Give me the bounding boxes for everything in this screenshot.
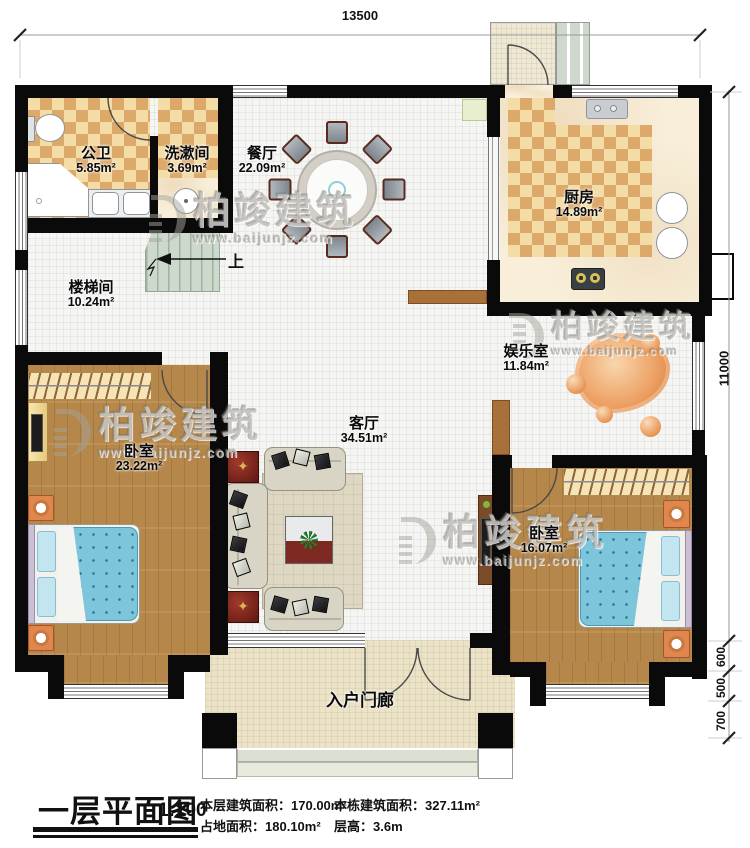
room-label-living: 客厅 34.51m²: [324, 416, 404, 446]
room-name: 厨房: [539, 190, 619, 206]
sofa-pillow-icon: [312, 596, 329, 613]
window: [228, 633, 365, 648]
room-name: 入户门廊: [290, 692, 430, 710]
wardrobe-bedroom2: [563, 468, 690, 496]
floor-kitchen-checker: [508, 98, 555, 128]
stove-burner-right: [590, 273, 600, 283]
room-name: 卧室: [504, 526, 584, 542]
porch-step: [237, 762, 478, 777]
backdoor-threshold: [505, 85, 553, 98]
wall: [15, 85, 28, 172]
ottoman-ball-icon: [641, 334, 660, 353]
fridge-icon: [462, 99, 487, 121]
pillow-icon: [37, 531, 56, 572]
kitchen-sink-faucets2: [610, 105, 617, 112]
ottoman-ball-icon: [596, 406, 613, 423]
nightstand-icon: [663, 630, 690, 658]
room-area: 5.85m²: [56, 162, 136, 176]
sofa-pillow-icon: [314, 453, 331, 470]
room-label-entertainment: 娱乐室 11.84m²: [486, 344, 566, 374]
sofa-pillow-icon: [292, 599, 310, 617]
dining-chair-icon: [326, 235, 348, 258]
partition-wood-horizontal: [408, 290, 487, 304]
dim-top-13500: 13500: [334, 8, 386, 23]
window: [15, 172, 28, 250]
toilet-bowl-icon: [35, 114, 65, 142]
room-name: 楼梯间: [51, 280, 131, 296]
room-area: 23.22m²: [99, 460, 179, 474]
wall: [692, 316, 705, 342]
wardrobe-bedroom1: [28, 372, 152, 400]
backdoor-steps: [556, 22, 590, 85]
kitchen-round-top-icon: [656, 192, 688, 224]
wall: [487, 98, 500, 137]
dining-chair-icon: [383, 179, 406, 201]
ottoman-ball-icon: [640, 416, 661, 437]
stove-burner-left: [576, 273, 586, 283]
dining-chair-icon: [326, 121, 348, 144]
room-area: 22.09m²: [222, 162, 302, 176]
room-area: 16.07m²: [504, 542, 584, 556]
stat-storey-height: 层高：3.6m: [334, 816, 403, 835]
wall: [552, 455, 693, 468]
wall: [530, 662, 546, 706]
plant-icon: [300, 531, 318, 549]
wall: [184, 655, 210, 672]
room-label-bedroom2: 卧室 16.07m²: [504, 526, 584, 556]
room-name: 公卫: [56, 146, 136, 162]
stat-label: 占地面积：: [200, 819, 265, 834]
porch-step-side: [202, 748, 237, 779]
room-label-bathroom: 公卫 5.85m²: [56, 146, 136, 176]
pillow-icon: [37, 577, 56, 617]
end-table-icon: [227, 591, 259, 623]
stat-label: 本栋建筑面积：: [334, 798, 425, 813]
window: [233, 85, 287, 98]
wall: [15, 218, 233, 233]
tv-icon-living: [481, 518, 491, 566]
dim-right-11000: 11000: [717, 347, 732, 391]
nightstand-icon: [663, 500, 690, 528]
dining-table-center: [328, 181, 346, 199]
ottoman-ball-icon: [566, 374, 586, 394]
room-area: 34.51m²: [324, 432, 404, 446]
room-area: 11.84m²: [486, 360, 566, 374]
stat-total-area: 本栋建筑面积：327.11m²: [334, 795, 480, 814]
wall: [287, 85, 505, 98]
room-label-dining: 餐厅 22.09m²: [222, 146, 302, 176]
room-name: 卧室: [99, 444, 179, 460]
kitchen-sliding-door: [488, 137, 499, 260]
floor-bedroom1-bay: [64, 655, 168, 684]
shower-drain-icon: [36, 198, 42, 204]
sofa-pillow-icon: [230, 536, 248, 554]
wall: [15, 345, 28, 672]
wall: [15, 250, 28, 270]
stat-value: 180.10m²: [265, 819, 321, 834]
wall: [15, 352, 162, 365]
washroom-basin-drain: [184, 199, 188, 203]
wall: [15, 655, 48, 672]
wall: [15, 85, 233, 98]
porch-column: [202, 713, 237, 748]
stat-floor-area: 本层建筑面积：170.00m²: [200, 795, 347, 814]
partition-wood-vertical: [492, 400, 510, 455]
window: [692, 342, 705, 430]
stat-land-area: 占地面积：180.10m²: [200, 816, 321, 835]
cabinet-plant-dot: [483, 501, 490, 508]
window: [64, 684, 168, 699]
kitchen-sink-faucets: [594, 105, 601, 112]
wall: [692, 455, 707, 679]
room-name: 洗漱间: [147, 146, 227, 162]
wall: [168, 655, 184, 699]
sink-right-icon: [123, 192, 150, 215]
wall: [649, 662, 665, 706]
porch-step: [237, 748, 478, 762]
bay-box: [710, 253, 734, 300]
window: [546, 684, 649, 699]
room-label-porch: 入户门廊: [290, 692, 430, 710]
title-underline-thick: [33, 827, 198, 832]
floor-bedroom2-bay: [546, 662, 649, 684]
porch-column: [478, 713, 513, 748]
wall: [210, 352, 228, 655]
wall: [48, 655, 64, 699]
dining-chair-icon: [269, 179, 292, 201]
kitchen-round-bottom-icon: [656, 227, 688, 259]
pillow-icon: [661, 536, 680, 576]
room-area: 3.69m²: [147, 162, 227, 176]
room-label-bedroom1: 卧室 23.22m²: [99, 444, 179, 474]
window: [15, 270, 28, 345]
wall: [510, 662, 530, 677]
room-name: 客厅: [324, 416, 404, 432]
wall: [665, 662, 695, 677]
stat-label: 本层建筑面积：: [200, 798, 291, 813]
room-area: 10.24m²: [51, 296, 131, 310]
porch-step-side: [478, 748, 513, 779]
title-underline-thin: [33, 835, 198, 838]
nightstand-icon: [28, 495, 54, 521]
room-label-stairhall: 楼梯间 10.24m²: [51, 280, 131, 310]
room-name: 娱乐室: [486, 344, 566, 360]
kitchen-sink-icon: [586, 99, 628, 119]
headboard-bedroom1: [28, 524, 35, 624]
room-label-kitchen: 厨房 14.89m²: [539, 190, 619, 220]
stat-value: 327.11m²: [425, 798, 480, 813]
sink-left-icon: [92, 192, 119, 215]
wall: [487, 302, 712, 316]
wall: [492, 455, 510, 675]
wall: [553, 85, 572, 98]
nightstand-icon: [28, 625, 54, 651]
room-label-washroom: 洗漱间 3.69m²: [147, 146, 227, 176]
end-table-icon: [227, 451, 259, 483]
sofa-seam: [269, 618, 341, 620]
tv-icon-bedroom1: [31, 414, 43, 452]
room-area: 14.89m²: [539, 206, 619, 220]
dim-right-700: 700: [714, 701, 728, 741]
pillow-icon: [661, 581, 680, 621]
stat-value: 3.6m: [373, 819, 403, 834]
window: [572, 85, 678, 98]
backdoor-landing: [490, 22, 556, 85]
stairs-up-label: 上: [228, 248, 244, 272]
stat-label: 层高：: [334, 819, 373, 834]
wall: [470, 633, 492, 648]
headboard-bedroom2: [685, 530, 692, 628]
room-name: 餐厅: [222, 146, 302, 162]
wall: [487, 260, 500, 316]
floor-plan-page: 上: [0, 0, 750, 848]
